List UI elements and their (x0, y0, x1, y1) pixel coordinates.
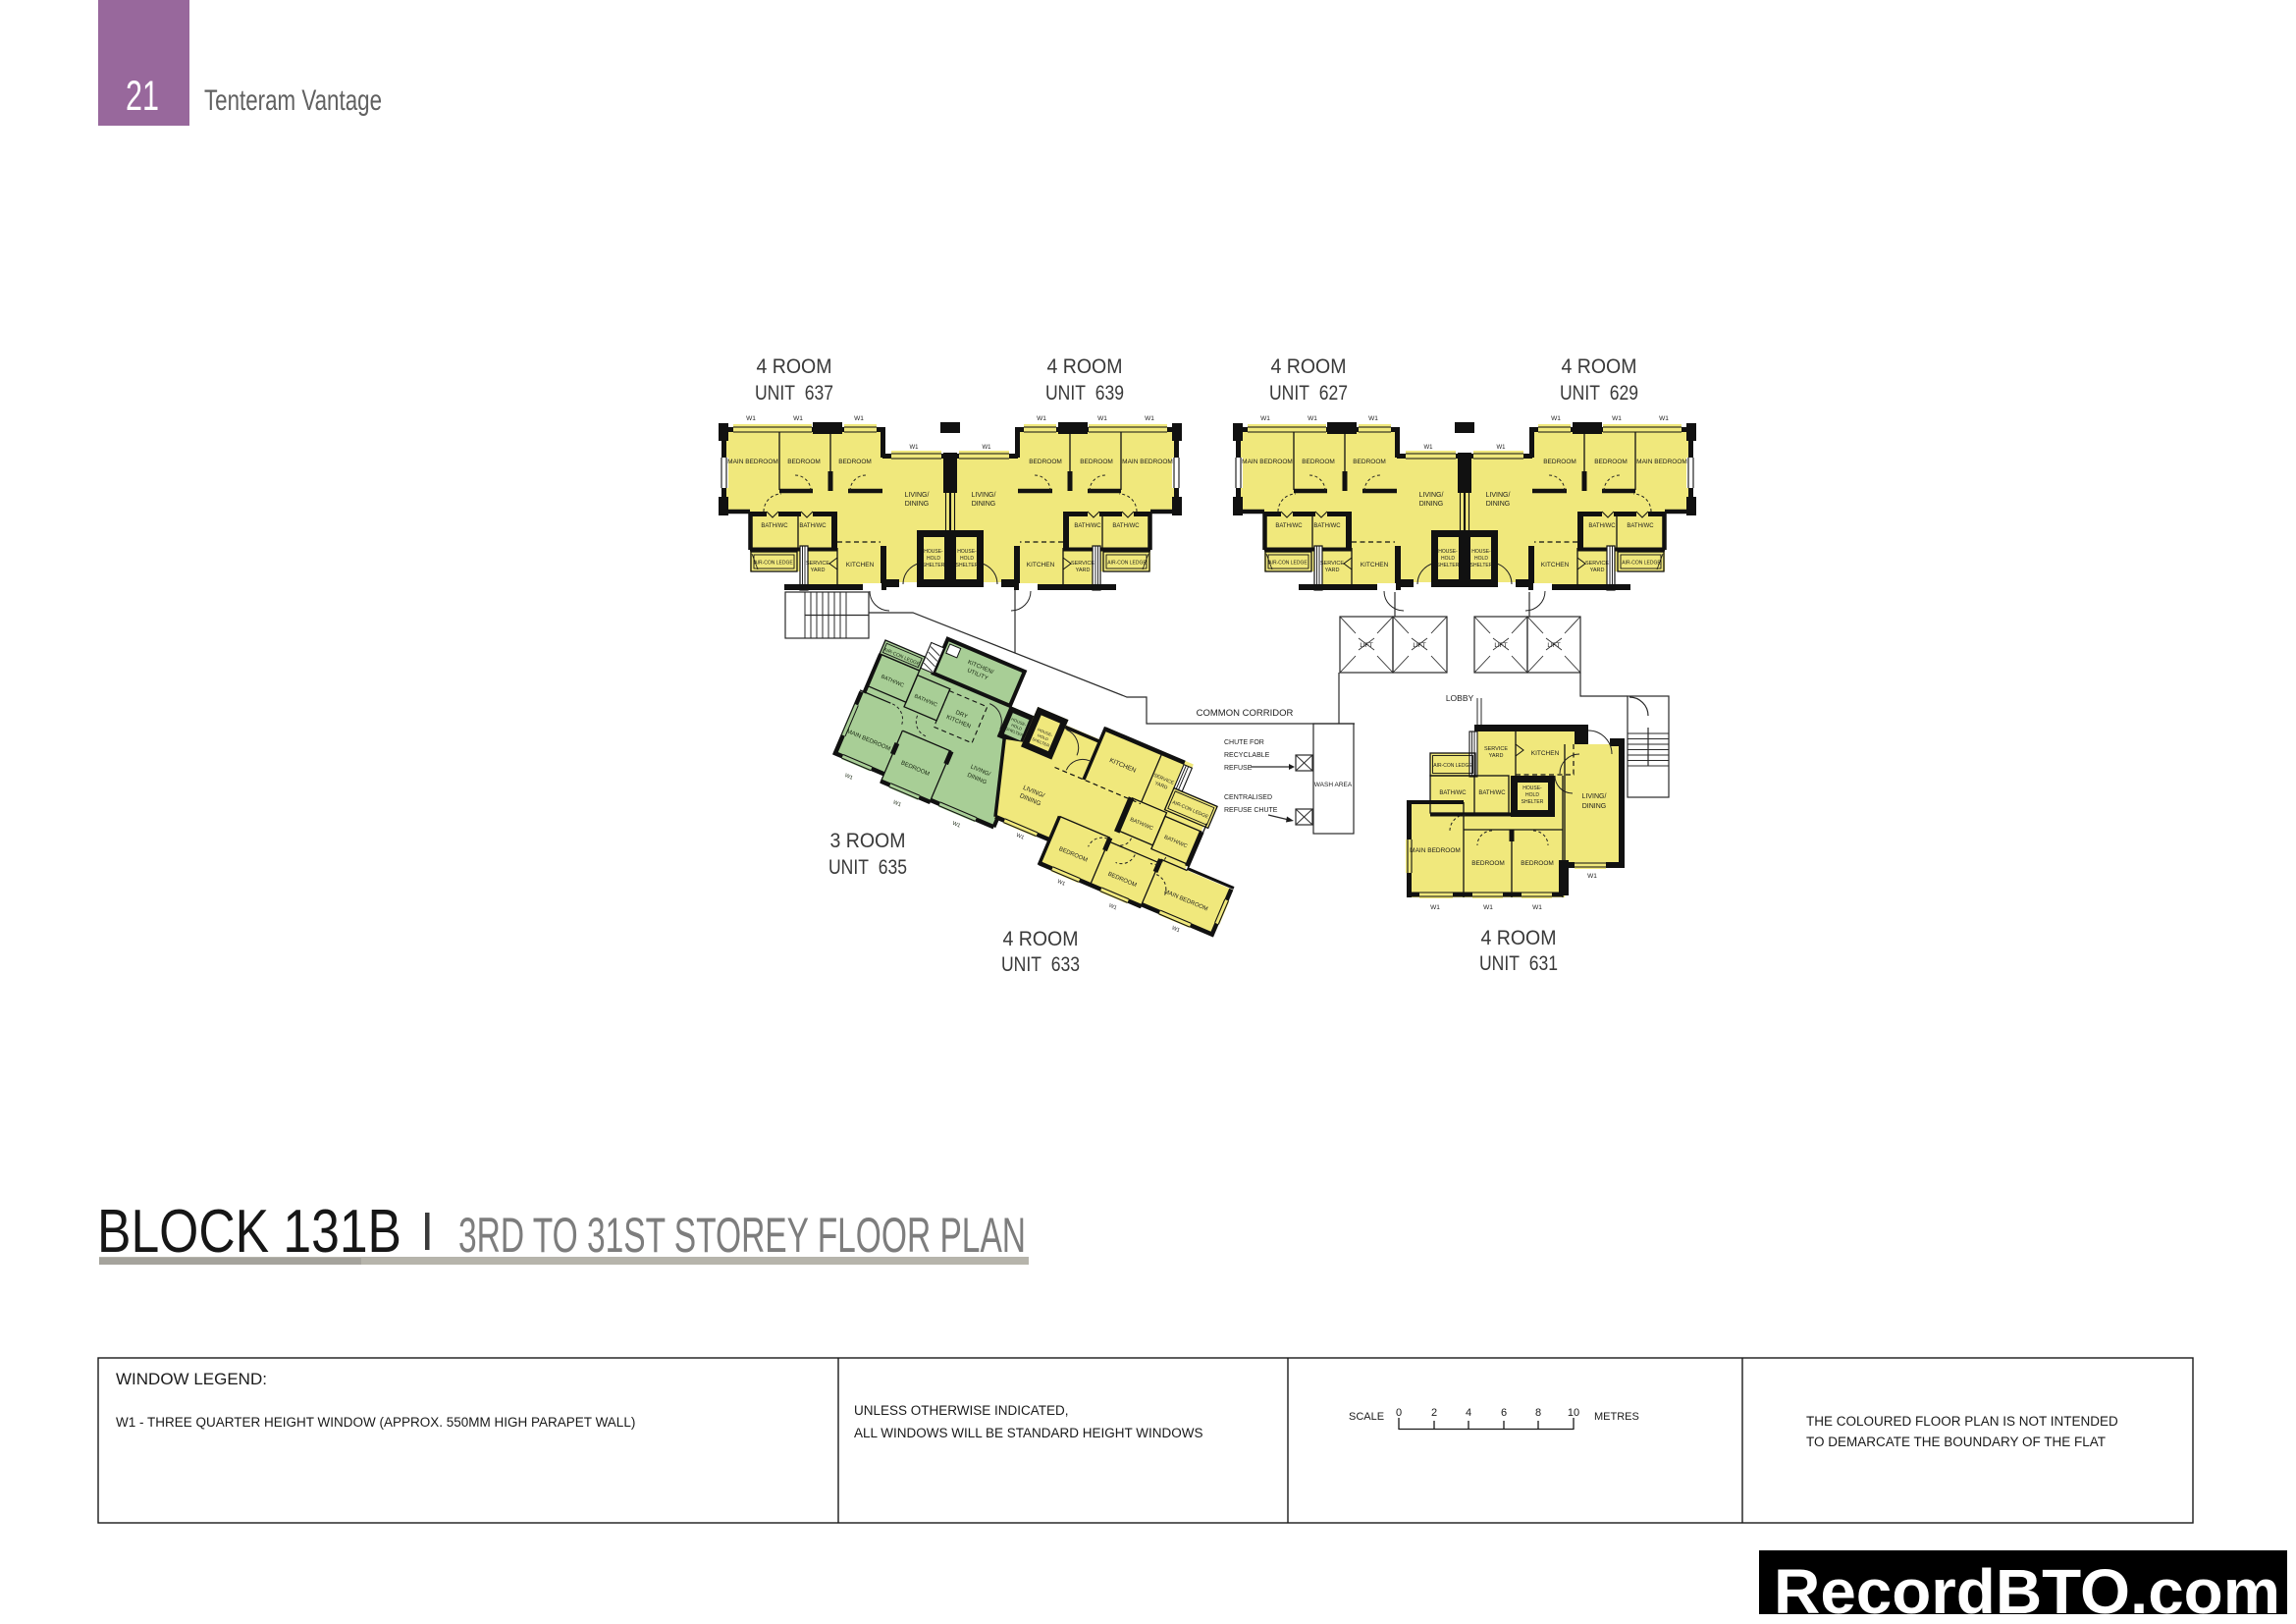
svg-text:UNIT 637: UNIT 637 (755, 382, 833, 405)
svg-text:W1: W1 (1587, 873, 1597, 880)
svg-text:YARD: YARD (811, 568, 826, 573)
svg-text:HOUSE-: HOUSE- (1522, 785, 1542, 791)
svg-text:REFUSE: REFUSE (1224, 765, 1253, 772)
svg-text:4 ROOM: 4 ROOM (757, 355, 832, 378)
svg-text:KITCHEN: KITCHEN (1027, 562, 1055, 568)
svg-text:CHUTE FOR: CHUTE FOR (1224, 739, 1264, 746)
svg-text:WINDOW LEGEND:: WINDOW LEGEND: (116, 1370, 267, 1388)
svg-text:W1: W1 (1145, 415, 1154, 422)
svg-text:BATH/WC: BATH/WC (761, 523, 788, 529)
svg-text:W1 - THREE QUARTER HEIGHT WIND: W1 - THREE QUARTER HEIGHT WINDOW (APPROX… (116, 1415, 635, 1430)
svg-text:W1: W1 (746, 415, 756, 422)
svg-text:SHELTER: SHELTER (956, 563, 979, 568)
svg-text:HOLD: HOLD (960, 556, 974, 562)
svg-text:BLOCK 131B: BLOCK 131B (97, 1198, 401, 1266)
svg-text:AIR-CON LEDGE: AIR-CON LEDGE (1107, 561, 1147, 567)
svg-text:W1: W1 (793, 415, 803, 422)
svg-text:DINING: DINING (905, 501, 930, 508)
svg-text:ALL WINDOWS WILL BE STANDARD H: ALL WINDOWS WILL BE STANDARD HEIGHT WIND… (854, 1426, 1203, 1440)
svg-text:UNIT 639: UNIT 639 (1045, 382, 1124, 405)
svg-text:METRES: METRES (1594, 1411, 1639, 1423)
svg-text:W1: W1 (910, 445, 920, 451)
svg-text:MAIN BEDROOM: MAIN BEDROOM (727, 459, 778, 465)
svg-text:BEDROOM: BEDROOM (1471, 860, 1505, 867)
svg-text:W1: W1 (854, 415, 864, 422)
svg-text:MAIN BEDROOM: MAIN BEDROOM (1122, 459, 1173, 465)
svg-text:DINING: DINING (1582, 803, 1607, 810)
svg-text:BATH/WC: BATH/WC (1478, 790, 1506, 796)
svg-text:SERVICE: SERVICE (806, 561, 829, 567)
svg-text:4 ROOM: 4 ROOM (1562, 355, 1637, 378)
svg-text:UNLESS OTHERWISE INDICATED,: UNLESS OTHERWISE INDICATED, (854, 1403, 1069, 1418)
svg-text:W1: W1 (983, 445, 992, 451)
svg-text:BATH/WC: BATH/WC (1112, 523, 1140, 529)
svg-text:WASH AREA: WASH AREA (1314, 782, 1353, 788)
svg-text:BEDROOM: BEDROOM (787, 459, 821, 465)
svg-text:SHELTER: SHELTER (1522, 799, 1544, 805)
svg-text:HOUSE-: HOUSE- (957, 549, 977, 555)
svg-text:DINING: DINING (972, 501, 996, 508)
svg-text:W1: W1 (1532, 904, 1542, 911)
svg-text:HOLD: HOLD (1525, 792, 1539, 798)
svg-text:BEDROOM: BEDROOM (1080, 459, 1113, 465)
svg-text:SERVICE: SERVICE (1071, 561, 1095, 567)
svg-text:RecordBTO.com: RecordBTO.com (1774, 1556, 2280, 1624)
svg-text:SERVICE: SERVICE (1484, 746, 1508, 752)
svg-text:BATH/WC: BATH/WC (1439, 790, 1467, 796)
svg-text:TO DEMARCATE THE BOUNDARY OF T: TO DEMARCATE THE BOUNDARY OF THE FLAT (1806, 1435, 2106, 1449)
svg-text:SCALE: SCALE (1349, 1411, 1384, 1423)
svg-text:W1: W1 (1097, 415, 1107, 422)
svg-text:BEDROOM: BEDROOM (1029, 459, 1062, 465)
svg-text:6: 6 (1501, 1407, 1507, 1419)
svg-text:BATH/WC: BATH/WC (799, 523, 827, 529)
svg-text:KITCHEN: KITCHEN (846, 562, 875, 568)
svg-text:LIVING/: LIVING/ (905, 492, 930, 499)
svg-text:REFUSE CHUTE: REFUSE CHUTE (1224, 807, 1278, 814)
svg-text:BEDROOM: BEDROOM (838, 459, 872, 465)
svg-text:UNIT 627: UNIT 627 (1269, 382, 1348, 405)
svg-text:W1: W1 (1430, 904, 1440, 911)
svg-text:3RD TO 31ST STOREY FLOOR PLAN: 3RD TO 31ST STOREY FLOOR PLAN (458, 1208, 1026, 1263)
svg-text:10: 10 (1568, 1407, 1579, 1419)
svg-text:4 ROOM: 4 ROOM (1271, 355, 1347, 378)
svg-text:4: 4 (1466, 1407, 1471, 1419)
svg-text:8: 8 (1535, 1407, 1541, 1419)
svg-text:UNIT 631: UNIT 631 (1479, 952, 1558, 975)
svg-text:Tenteram Vantage: Tenteram Vantage (204, 84, 382, 117)
svg-text:LIVING/: LIVING/ (1582, 793, 1607, 800)
svg-text:AIR-CON LEDGE: AIR-CON LEDGE (754, 561, 793, 567)
svg-text:THE COLOURED FLOOR PLAN IS NOT: THE COLOURED FLOOR PLAN IS NOT INTENDED (1806, 1414, 2118, 1429)
svg-text:YARD: YARD (1489, 753, 1504, 759)
svg-text:SHELTER: SHELTER (923, 563, 945, 568)
svg-text:BATH/WC: BATH/WC (1074, 523, 1101, 529)
svg-text:0: 0 (1396, 1407, 1402, 1419)
svg-text:W1: W1 (1037, 415, 1046, 422)
svg-text:4 ROOM: 4 ROOM (1481, 927, 1557, 949)
svg-text:HOLD: HOLD (927, 556, 940, 562)
svg-text:UNIT 633: UNIT 633 (1001, 953, 1080, 976)
svg-text:COMMON CORRIDOR: COMMON CORRIDOR (1197, 708, 1294, 719)
svg-text:21: 21 (126, 73, 159, 120)
svg-text:4 ROOM: 4 ROOM (1003, 928, 1079, 950)
svg-text:W1: W1 (1483, 904, 1493, 911)
svg-text:YARD: YARD (1076, 568, 1091, 573)
svg-text:RECYCLABLE: RECYCLABLE (1224, 752, 1270, 759)
svg-text:UNIT 635: UNIT 635 (828, 856, 907, 879)
svg-text:KITCHEN: KITCHEN (1531, 750, 1560, 757)
svg-text:2: 2 (1431, 1407, 1437, 1419)
svg-text:AIR-CON LEDGE: AIR-CON LEDGE (1433, 763, 1472, 769)
svg-text:4 ROOM: 4 ROOM (1047, 355, 1123, 378)
svg-text:HOUSE-: HOUSE- (924, 549, 943, 555)
svg-text:CENTRALISED: CENTRALISED (1224, 794, 1272, 801)
svg-text:BEDROOM: BEDROOM (1521, 860, 1554, 867)
svg-text:3 ROOM: 3 ROOM (830, 830, 906, 852)
svg-text:LOBBY: LOBBY (1446, 693, 1474, 703)
svg-text:UNIT 629: UNIT 629 (1560, 382, 1638, 405)
svg-text:LIVING/: LIVING/ (972, 492, 996, 499)
svg-text:MAIN BEDROOM: MAIN BEDROOM (1410, 847, 1461, 854)
